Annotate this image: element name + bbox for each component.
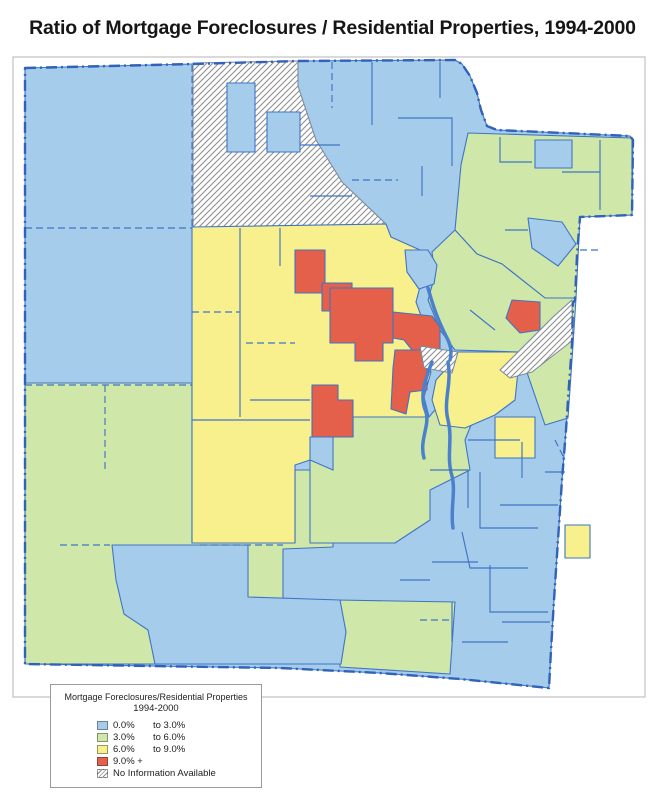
legend-label: to 6.0% [153, 732, 185, 743]
tract-green-bottom-strip [337, 600, 455, 674]
legend-item-2: 6.0%to 9.0% [97, 744, 261, 756]
tract-yellow-pocket-1 [495, 417, 535, 458]
tract-yellow-pocket-2 [565, 525, 590, 558]
map-legend: Mortgage Foreclosures/Residential Proper… [50, 684, 262, 788]
legend-subtitle: 1994-2000 [51, 703, 261, 714]
legend-label: 9.0% + [113, 756, 143, 767]
color-swatch [97, 745, 108, 754]
legend-item-0: 0.0%to 3.0% [97, 720, 261, 732]
tract-red-tract-1 [295, 250, 325, 293]
county-choropleth-map [0, 0, 659, 800]
legend-label: to 3.0% [153, 720, 185, 731]
legend-label: 3.0% [113, 732, 153, 743]
legend-label: No Information Available [113, 768, 216, 779]
legend-items: 0.0%to 3.0%3.0%to 6.0%6.0%to 9.0%9.0% +N… [97, 720, 261, 779]
legend-label: 6.0% [113, 744, 153, 755]
legend-item-3: 9.0% + [97, 755, 261, 767]
tract-blue-inlet-2 [267, 112, 300, 152]
legend-label: to 9.0% [153, 744, 185, 755]
color-swatch [97, 733, 108, 742]
legend-label: 0.0% [113, 720, 153, 731]
no-info-hatch-swatch [97, 769, 108, 778]
tract-blue-inlet-1 [227, 83, 255, 152]
tract-blue-ne-tract-1 [535, 140, 572, 168]
color-swatch [97, 721, 108, 730]
color-swatch [97, 757, 108, 766]
legend-item-1: 3.0%to 6.0% [97, 732, 261, 744]
legend-title: Mortgage Foreclosures/Residential Proper… [51, 692, 261, 702]
legend-item-4: No Information Available [97, 767, 261, 779]
